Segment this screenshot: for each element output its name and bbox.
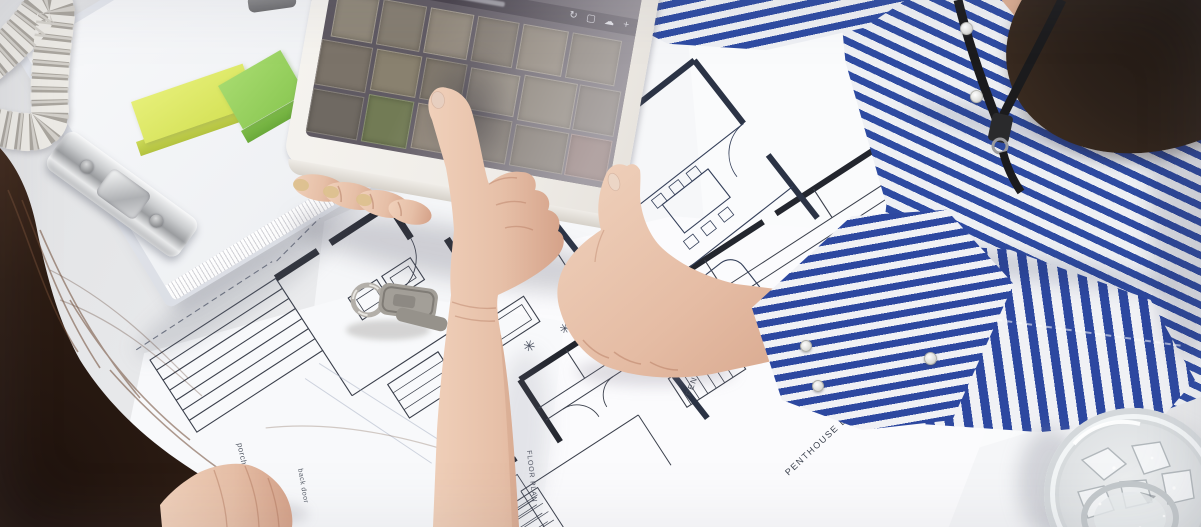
shirt-button <box>970 90 983 103</box>
result-thumbnail <box>565 32 622 86</box>
cuff-button <box>924 352 937 365</box>
result-thumbnail <box>370 49 423 98</box>
ice-cubes <box>1044 408 1201 527</box>
cloud-icon: ☁ <box>604 16 616 29</box>
result-thumbnail <box>306 88 365 140</box>
shirt-button <box>960 22 973 35</box>
browser-icons: ↻▢☁+ <box>568 10 630 31</box>
clip-screw <box>78 158 96 176</box>
clip-screw <box>147 212 165 230</box>
water-glass <box>1044 408 1201 527</box>
result-thumbnail <box>376 0 427 52</box>
result-thumbnail <box>572 84 621 137</box>
add-tab-icon: + <box>622 19 630 31</box>
photo-scene: ✳ ✳ ✳ ✳ <box>0 0 1201 527</box>
tablet-screen: ↻▢☁+ <box>305 0 658 189</box>
result-thumbnail <box>356 145 405 175</box>
cuff-button <box>800 340 812 352</box>
pages-icon: ▢ <box>585 13 596 25</box>
result-thumbnail <box>361 94 415 149</box>
result-thumbnail <box>314 39 373 93</box>
result-thumbnail <box>517 75 578 130</box>
cuff-button <box>812 380 824 392</box>
refresh-icon: ↻ <box>568 10 578 22</box>
result-thumbnail <box>564 134 613 183</box>
result-thumbnail <box>516 24 569 77</box>
result-thumbnail <box>331 0 380 44</box>
result-thumbnail <box>305 135 356 166</box>
result-thumbnail <box>509 124 569 175</box>
result-thumbnail <box>504 171 561 189</box>
